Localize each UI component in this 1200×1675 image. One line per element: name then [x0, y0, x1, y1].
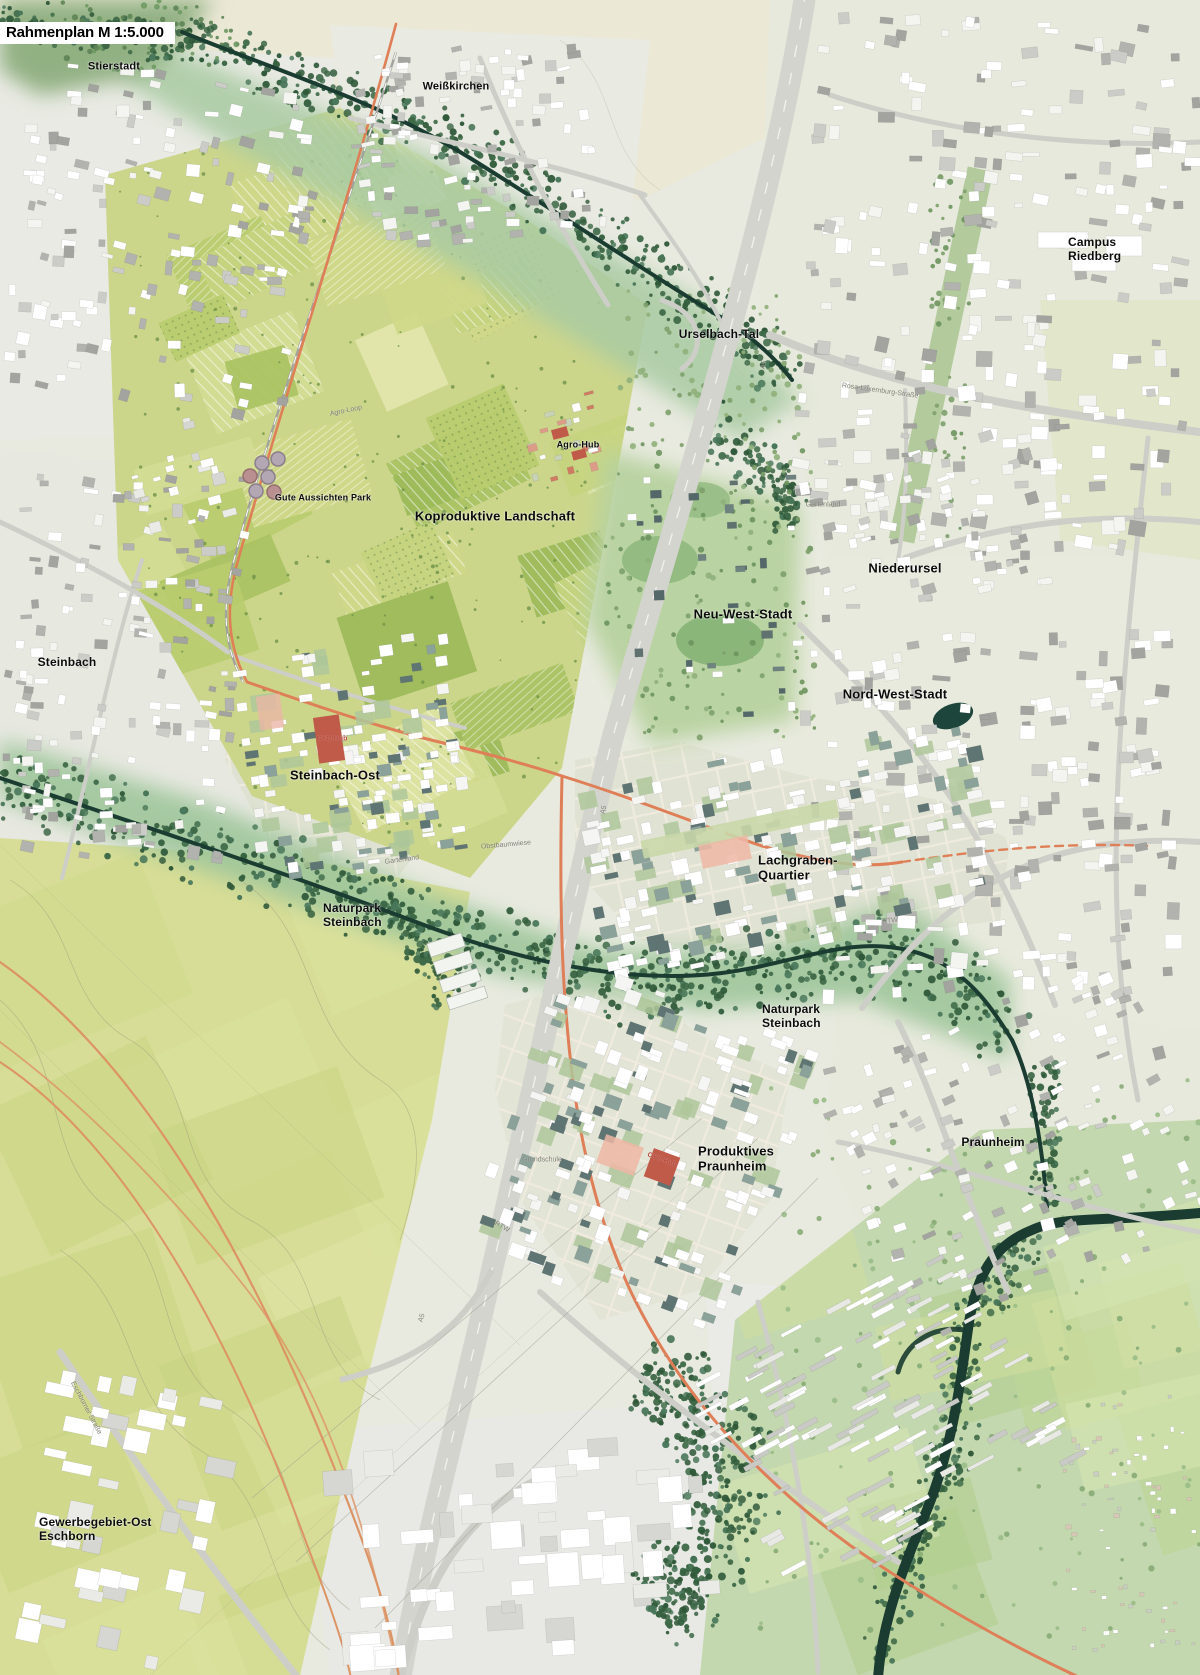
masterplan-map: StierstadtWeißkirchenCampus RiedbergUrse…: [0, 0, 1200, 1675]
map-title: Rahmenplan M 1:5.000: [0, 22, 175, 44]
map-title-text: Rahmenplan M 1:5.000: [6, 24, 164, 41]
map-canvas: [0, 0, 1200, 1675]
